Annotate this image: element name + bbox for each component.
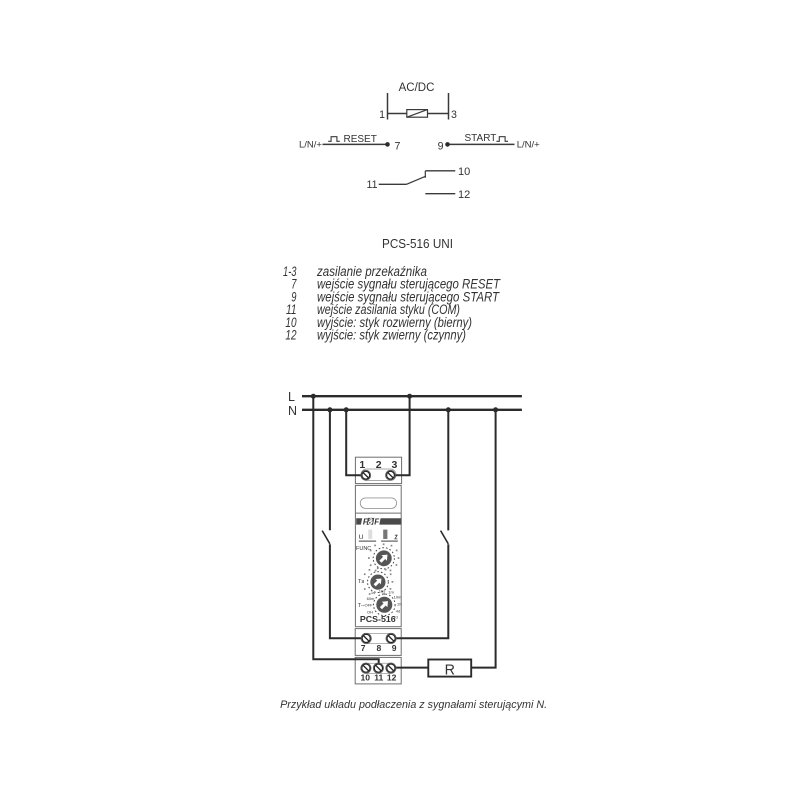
svg-text:2: 2 (376, 459, 382, 471)
svg-text:10: 10 (361, 673, 371, 683)
svg-text:12: 12 (387, 673, 397, 683)
svg-text:L/N/+: L/N/+ (299, 140, 322, 151)
svg-text:12: 12 (285, 328, 297, 343)
svg-text:10s: 10s (379, 588, 385, 593)
svg-text:7: 7 (361, 643, 366, 653)
svg-text:PCS-516: PCS-516 (360, 614, 396, 624)
svg-text:RESET: RESET (344, 134, 377, 145)
svg-text:9: 9 (438, 140, 444, 152)
svg-text:2h: 2h (397, 602, 401, 607)
svg-text:3: 3 (391, 459, 397, 471)
svg-text:Przykład układu podłaczenia z: Przykład układu podłaczenia z sygnałami … (280, 699, 547, 711)
svg-text:12: 12 (458, 189, 470, 201)
svg-text:1s: 1s (371, 590, 375, 595)
svg-text:L/N/+: L/N/+ (517, 140, 540, 151)
svg-text:U: U (359, 534, 364, 541)
svg-text:11: 11 (374, 673, 383, 683)
svg-text:10: 10 (458, 166, 470, 178)
svg-text:3: 3 (451, 109, 457, 121)
svg-text:wyjście: styk zwierny (czynny): wyjście: styk zwierny (czynny) (317, 328, 466, 343)
svg-text:AC/DC: AC/DC (399, 82, 435, 94)
svg-text:1: 1 (359, 459, 365, 471)
svg-text:8: 8 (377, 643, 382, 653)
svg-text:OFF: OFF (365, 603, 374, 608)
svg-text:60m: 60m (367, 596, 375, 601)
svg-text:10m: 10m (394, 594, 402, 599)
svg-text:R: R (445, 663, 455, 679)
svg-text:7: 7 (395, 140, 401, 152)
svg-text:1: 1 (379, 109, 385, 121)
svg-text:PCS-516 UNI: PCS-516 UNI (382, 236, 453, 251)
svg-text:11: 11 (367, 179, 378, 191)
svg-text:N: N (288, 404, 297, 418)
svg-text:4d: 4d (396, 608, 400, 613)
svg-text:9: 9 (392, 643, 397, 653)
svg-text:FUNC: FUNC (356, 546, 371, 552)
svg-text:L: L (288, 390, 295, 404)
svg-text:START: START (465, 133, 497, 144)
